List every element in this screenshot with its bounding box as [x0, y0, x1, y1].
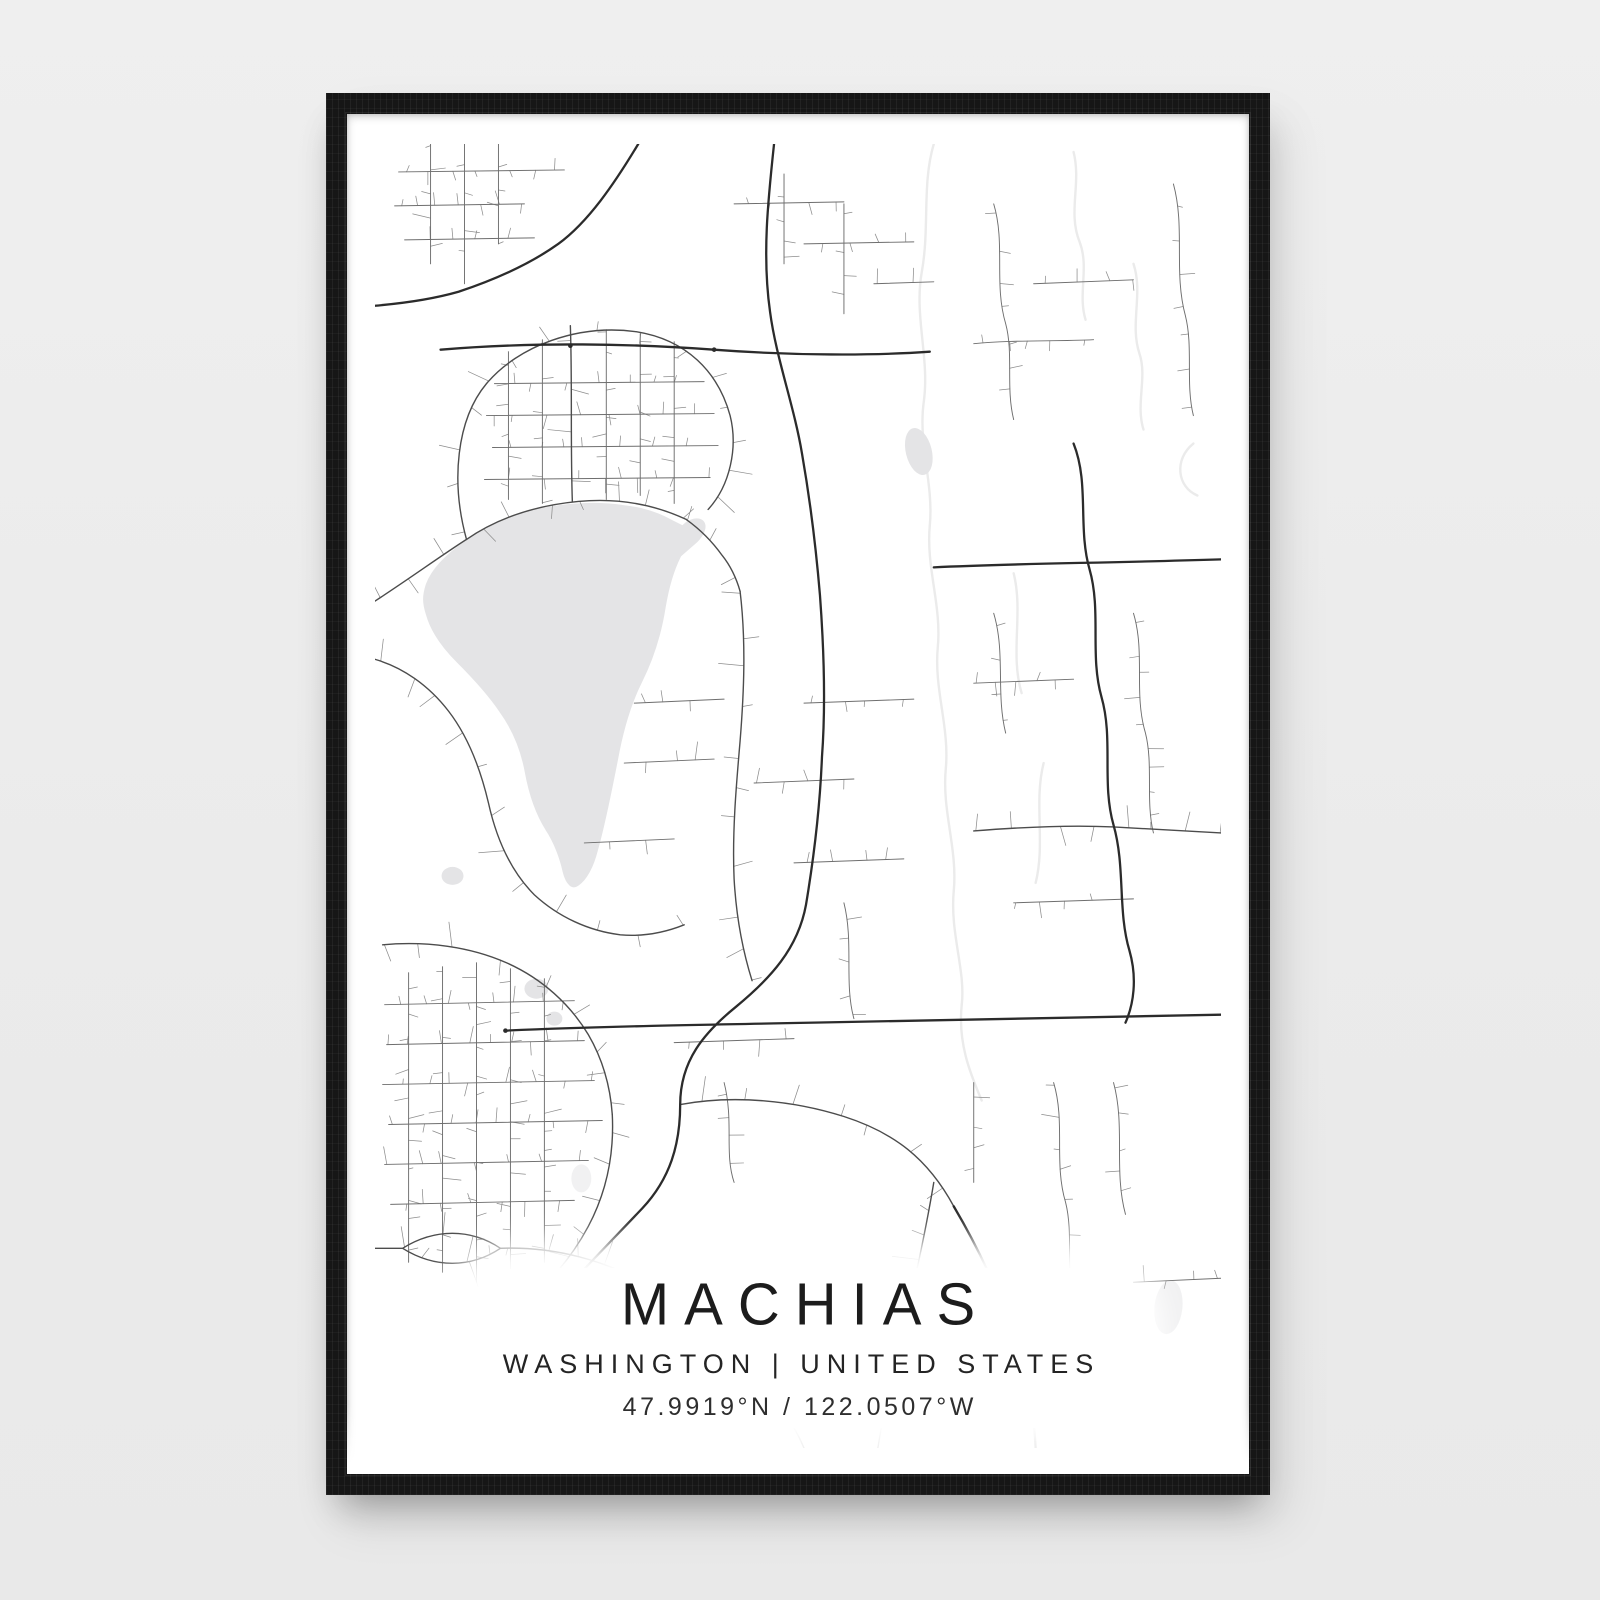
city-map	[375, 144, 1221, 1448]
poster-paper: MACHIAS WASHINGTON | UNITED STATES 47.99…	[347, 114, 1249, 1474]
poster-frame: MACHIAS WASHINGTON | UNITED STATES 47.99…	[326, 93, 1270, 1495]
map-area	[375, 144, 1221, 1448]
